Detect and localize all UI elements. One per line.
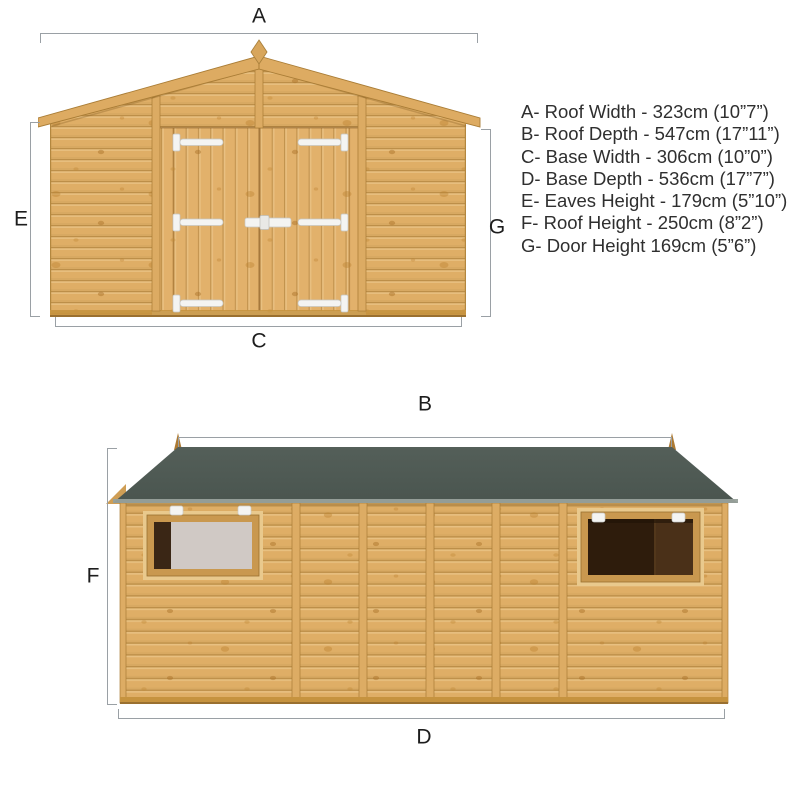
spec-eaves-height: E- Eaves Height - 179cm (5”10”) bbox=[521, 190, 796, 212]
spec-roof-depth: B- Roof Depth - 547cm (17”11”) bbox=[521, 123, 796, 145]
dim-label-B: B bbox=[418, 394, 432, 415]
dim-label-A: A bbox=[252, 6, 266, 27]
shed-dimension-diagram: A C E G B F D A- Roof Width - 323cm (10”… bbox=[0, 0, 800, 800]
front-elevation-illustration bbox=[38, 38, 482, 320]
dim-line-roof-depth-B bbox=[178, 437, 672, 447]
dim-label-C: C bbox=[251, 331, 266, 352]
dim-label-E: E bbox=[14, 209, 28, 230]
side-window-right bbox=[577, 508, 704, 586]
dim-label-F: F bbox=[87, 566, 100, 587]
dim-line-base-depth-D bbox=[118, 709, 725, 719]
dim-line-roof-width-A bbox=[40, 33, 478, 43]
dim-label-G: G bbox=[489, 217, 505, 238]
spec-base-depth: D- Base Depth - 536cm (17”7”) bbox=[521, 168, 796, 190]
side-window-left bbox=[143, 506, 263, 580]
spec-door-height: G- Door Height 169cm (5”6”) bbox=[521, 235, 796, 257]
spec-base-width: C- Base Width - 306cm (10”0”) bbox=[521, 146, 796, 168]
spec-roof-width: A- Roof Width - 323cm (10”7”) bbox=[521, 101, 796, 123]
dim-label-D: D bbox=[416, 727, 431, 748]
spec-roof-height: F- Roof Height - 250cm (8”2”) bbox=[521, 212, 796, 234]
dim-line-roof-height-F bbox=[107, 448, 117, 705]
dim-line-eaves-height-E bbox=[30, 122, 40, 317]
dim-line-base-width-C bbox=[55, 317, 462, 327]
side-elevation-illustration bbox=[100, 430, 745, 710]
dimension-spec-list: A- Roof Width - 323cm (10”7”) B- Roof De… bbox=[521, 101, 796, 257]
